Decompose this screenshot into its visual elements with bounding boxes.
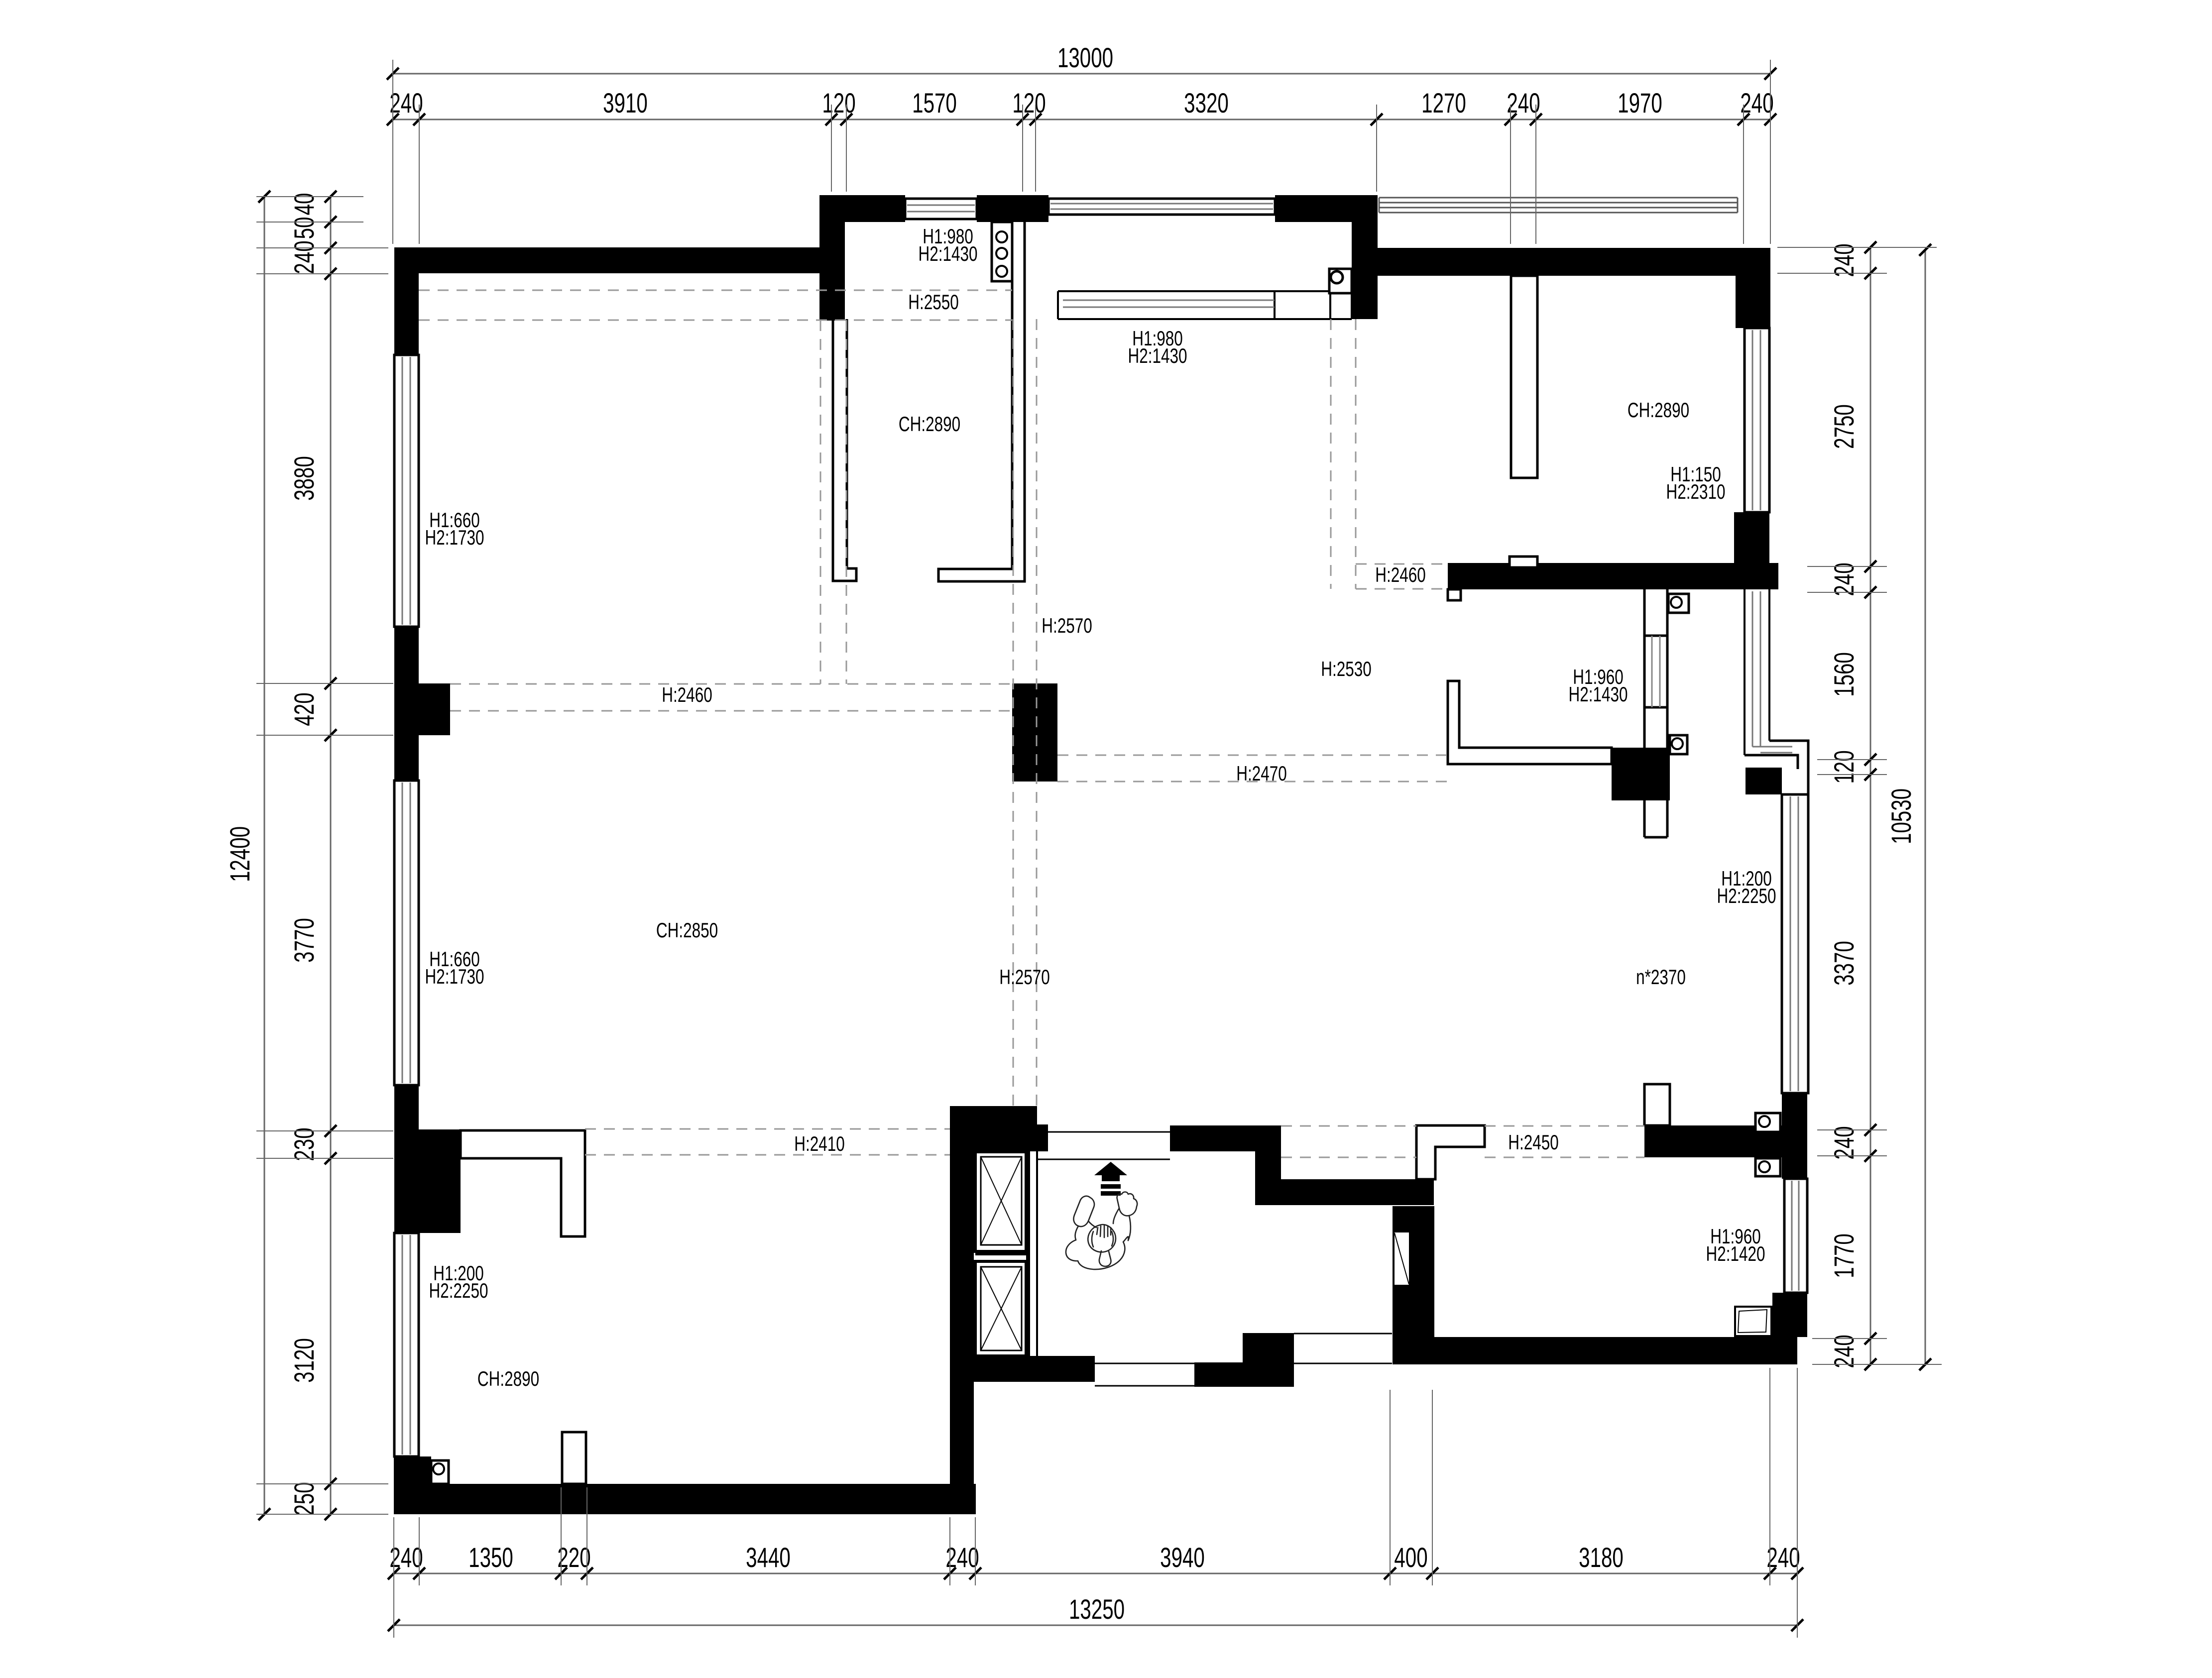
svg-text:H:2570: H:2570 — [1042, 614, 1092, 638]
svg-text:H:2410: H:2410 — [794, 1132, 845, 1156]
svg-text:240: 240 — [389, 1543, 423, 1573]
svg-text:3120: 3120 — [289, 1338, 320, 1383]
svg-text:240: 240 — [1829, 1335, 1860, 1368]
svg-text:240: 240 — [945, 1543, 979, 1573]
svg-text:1570: 1570 — [912, 88, 957, 119]
svg-text:H2:1420: H2:1420 — [1706, 1242, 1765, 1266]
svg-text:3180: 3180 — [1579, 1543, 1624, 1573]
svg-text:240: 240 — [1766, 1543, 1800, 1573]
svg-text:H2:1430: H2:1430 — [1568, 682, 1628, 706]
svg-text:1350: 1350 — [468, 1543, 513, 1573]
svg-text:2750: 2750 — [1829, 404, 1860, 449]
svg-text:H:2470: H:2470 — [1236, 762, 1287, 785]
svg-text:230: 230 — [289, 1127, 320, 1161]
svg-text:H2:1430: H2:1430 — [1128, 344, 1187, 368]
svg-text:3770: 3770 — [289, 918, 320, 963]
svg-text:10530: 10530 — [1886, 788, 1917, 844]
svg-text:240: 240 — [1829, 243, 1860, 277]
svg-text:400: 400 — [1394, 1543, 1427, 1573]
svg-text:n*2370: n*2370 — [1636, 965, 1686, 989]
svg-text:3320: 3320 — [1184, 88, 1229, 119]
svg-text:1970: 1970 — [1618, 88, 1662, 119]
svg-text:CH:2890: CH:2890 — [477, 1367, 539, 1391]
svg-text:H2:2250: H2:2250 — [1717, 884, 1776, 908]
svg-text:H:2450: H:2450 — [1508, 1130, 1559, 1154]
svg-text:420: 420 — [289, 692, 320, 726]
svg-text:50: 50 — [289, 217, 320, 239]
svg-text:12400: 12400 — [225, 826, 256, 882]
svg-text:240: 240 — [1740, 88, 1773, 119]
svg-text:CH:2890: CH:2890 — [899, 412, 960, 436]
svg-text:H2:1730: H2:1730 — [425, 526, 484, 550]
svg-text:H:2550: H:2550 — [908, 290, 959, 314]
svg-text:240: 240 — [1829, 1126, 1860, 1159]
svg-text:240: 240 — [389, 88, 423, 119]
svg-text:3880: 3880 — [289, 456, 320, 501]
svg-text:1770: 1770 — [1829, 1233, 1860, 1278]
svg-text:120: 120 — [1012, 88, 1046, 119]
svg-text:H:2460: H:2460 — [662, 683, 712, 707]
svg-text:H2:2250: H2:2250 — [429, 1279, 488, 1303]
svg-text:3370: 3370 — [1829, 941, 1860, 986]
svg-text:CH:2850: CH:2850 — [656, 918, 718, 942]
svg-text:3440: 3440 — [746, 1543, 791, 1573]
svg-text:3940: 3940 — [1160, 1543, 1205, 1573]
svg-text:H:2570: H:2570 — [999, 965, 1050, 989]
svg-text:240: 240 — [1507, 88, 1540, 119]
svg-text:120: 120 — [822, 88, 855, 119]
svg-text:3910: 3910 — [603, 88, 648, 119]
svg-text:H:2530: H:2530 — [1321, 657, 1372, 681]
svg-text:H:2460: H:2460 — [1375, 563, 1426, 587]
svg-text:CH:2890: CH:2890 — [1628, 398, 1689, 422]
svg-text:240: 240 — [1829, 562, 1860, 596]
svg-text:13000: 13000 — [1057, 43, 1113, 74]
svg-text:220: 220 — [557, 1543, 590, 1573]
svg-text:250: 250 — [289, 1482, 320, 1515]
svg-text:1560: 1560 — [1829, 652, 1860, 697]
svg-text:240: 240 — [289, 240, 320, 274]
svg-text:120: 120 — [1829, 750, 1860, 783]
svg-text:H2:1730: H2:1730 — [425, 965, 484, 989]
svg-text:1270: 1270 — [1421, 88, 1466, 119]
svg-text:H2:2310: H2:2310 — [1666, 480, 1725, 504]
svg-text:H2:1430: H2:1430 — [918, 242, 977, 266]
svg-text:13250: 13250 — [1069, 1594, 1125, 1625]
